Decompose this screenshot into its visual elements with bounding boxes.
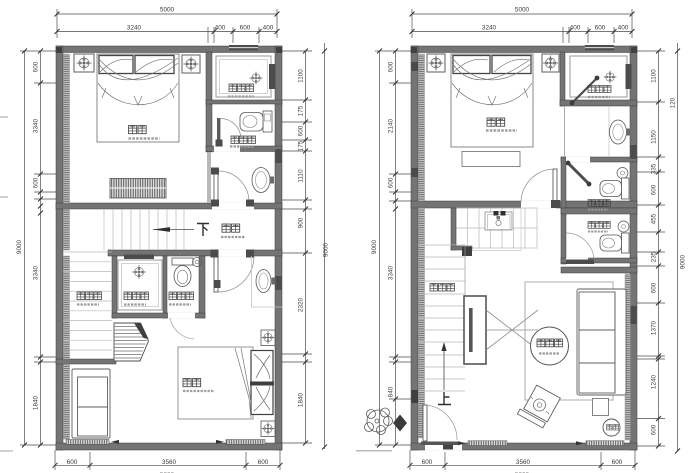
svg-text:3240: 3240 <box>127 25 142 32</box>
svg-text:400: 400 <box>263 25 274 32</box>
svg-text:2140: 2140 <box>388 118 395 133</box>
svg-text:600: 600 <box>258 459 269 466</box>
svg-text:600: 600 <box>240 25 251 32</box>
svg-text:600: 600 <box>612 459 623 466</box>
svg-text:9000: 9000 <box>680 254 687 269</box>
svg-text:400: 400 <box>570 25 581 32</box>
svg-text:2320: 2320 <box>298 297 305 312</box>
svg-text:600: 600 <box>388 177 395 188</box>
svg-text:3340: 3340 <box>388 265 395 280</box>
svg-text:600: 600 <box>33 61 40 72</box>
svg-text:900: 900 <box>298 217 305 228</box>
svg-text:400: 400 <box>215 25 226 32</box>
svg-text:600: 600 <box>595 25 606 32</box>
svg-text:400: 400 <box>618 25 629 32</box>
svg-text:1110: 1110 <box>298 169 305 183</box>
svg-text:1370: 1370 <box>651 320 658 335</box>
svg-text:335: 335 <box>651 163 658 174</box>
svg-text:1840: 1840 <box>298 392 305 407</box>
svg-text:455: 455 <box>651 213 658 224</box>
svg-text:120: 120 <box>670 97 677 108</box>
svg-text:3560: 3560 <box>516 459 531 466</box>
svg-text:3340: 3340 <box>33 265 40 280</box>
svg-text:1150: 1150 <box>651 130 658 144</box>
svg-text:600: 600 <box>298 125 305 136</box>
svg-text:1240: 1240 <box>651 374 658 389</box>
svg-text:175: 175 <box>298 140 305 151</box>
svg-text:9000: 9000 <box>16 239 23 254</box>
svg-text:3560: 3560 <box>162 459 177 466</box>
svg-text:1840: 1840 <box>33 395 40 410</box>
svg-text:235: 235 <box>651 251 658 262</box>
svg-text:600: 600 <box>422 459 433 466</box>
svg-text:600: 600 <box>651 184 658 195</box>
svg-text:600: 600 <box>388 61 395 72</box>
svg-text:840: 840 <box>388 386 395 397</box>
svg-text:3240: 3240 <box>482 25 497 32</box>
svg-text:5000: 5000 <box>160 7 175 14</box>
svg-text:9000: 9000 <box>323 242 330 257</box>
svg-text:5000: 5000 <box>515 7 530 14</box>
svg-text:600: 600 <box>67 459 78 466</box>
svg-text:3340: 3340 <box>33 118 40 133</box>
svg-text:175: 175 <box>298 105 305 116</box>
svg-text:600: 600 <box>651 424 658 435</box>
svg-text:1100: 1100 <box>651 69 658 83</box>
svg-text:1100: 1100 <box>298 69 305 83</box>
svg-text:600: 600 <box>33 177 40 188</box>
svg-text:600: 600 <box>651 282 658 293</box>
svg-text:9000: 9000 <box>371 239 378 254</box>
